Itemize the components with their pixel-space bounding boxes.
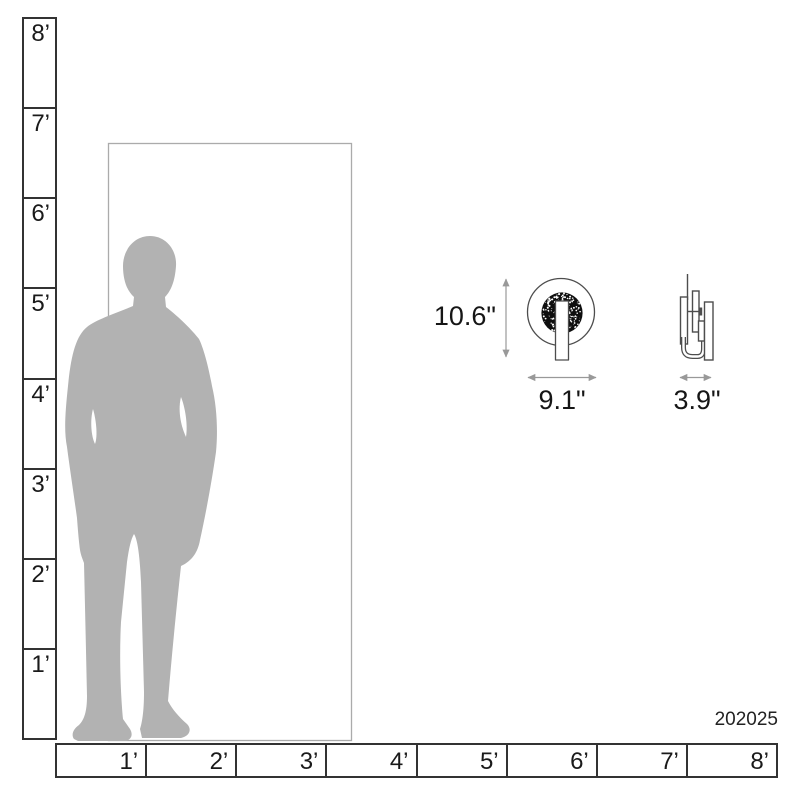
speckle-dot bbox=[543, 309, 545, 311]
speckle-dot bbox=[558, 293, 560, 295]
speckle-dot bbox=[573, 307, 575, 309]
sconce-front-bar bbox=[556, 301, 569, 360]
speckle-dot bbox=[553, 318, 555, 320]
speckle-dot bbox=[578, 309, 579, 310]
speckle-dot bbox=[573, 324, 574, 325]
depth-dimension-label: 3.9" bbox=[647, 387, 747, 414]
speckle-dot bbox=[572, 316, 573, 317]
height-dimension-label: 10.6" bbox=[418, 303, 496, 330]
speckle-dot bbox=[547, 300, 549, 302]
speckle-dot bbox=[570, 318, 571, 319]
speckle-dot bbox=[553, 296, 555, 298]
speckle-dot bbox=[579, 320, 580, 321]
speckle-dot bbox=[549, 315, 550, 316]
speckle-dot bbox=[572, 309, 573, 310]
speckle-dot bbox=[567, 298, 569, 300]
speckle-dot bbox=[569, 327, 570, 328]
speckle-dot bbox=[551, 318, 552, 319]
speckle-dot bbox=[551, 299, 552, 300]
speckle-dot bbox=[577, 303, 578, 304]
speckle-dot bbox=[577, 324, 579, 326]
product-front-view bbox=[528, 279, 595, 361]
side-view-socket bbox=[699, 321, 705, 341]
speckle-dot bbox=[569, 310, 570, 311]
speckle-dot bbox=[553, 303, 554, 304]
speckle-dot bbox=[574, 322, 576, 324]
speckle-dot bbox=[578, 307, 580, 309]
speckle-dot bbox=[554, 312, 555, 313]
speckle-dot bbox=[556, 294, 557, 295]
speckle-dot bbox=[553, 312, 554, 313]
speckle-dot bbox=[576, 316, 577, 317]
speckle-dot bbox=[570, 308, 572, 310]
speckle-dot bbox=[576, 306, 578, 308]
speckle-dot bbox=[575, 318, 577, 320]
speckle-dot bbox=[579, 318, 580, 319]
side-view-knob bbox=[699, 308, 702, 316]
speckle-dot bbox=[569, 296, 571, 298]
speckle-dot bbox=[548, 304, 550, 306]
speckle-dot bbox=[547, 307, 549, 309]
speckle-dot bbox=[573, 316, 574, 317]
speckle-dot bbox=[551, 308, 552, 309]
speckle-dot bbox=[562, 294, 564, 296]
speckle-dot bbox=[571, 321, 573, 323]
speckle-dot bbox=[543, 315, 545, 317]
side-view-disc-edge bbox=[681, 297, 688, 344]
speckle-dot bbox=[564, 296, 566, 298]
speckle-dot bbox=[551, 310, 552, 311]
speckle-dot bbox=[545, 309, 547, 311]
speckle-dot bbox=[578, 303, 579, 304]
speckle-dot bbox=[575, 315, 577, 317]
speckle-dot bbox=[551, 323, 552, 324]
speckle-dot bbox=[566, 294, 567, 295]
speckle-dot bbox=[551, 329, 553, 331]
speckle-dot bbox=[576, 313, 577, 314]
speckle-dot bbox=[569, 299, 570, 300]
speckle-dot bbox=[578, 301, 579, 302]
width-dimension-label: 9.1" bbox=[512, 387, 612, 414]
speckle-dot bbox=[548, 310, 550, 312]
speckle-dot bbox=[574, 320, 575, 321]
person-body bbox=[65, 236, 217, 741]
speckle-dot bbox=[547, 302, 549, 304]
speckle-dot bbox=[571, 300, 572, 301]
speckle-dot bbox=[563, 294, 564, 295]
dimension-diagram: 8’ 7’ 6’ 5’ 4’ 3’ 2’ 1’ 1’ 2’ 3’ 4’ 5’ 6… bbox=[0, 0, 800, 800]
speckle-dot bbox=[569, 305, 570, 306]
speckle-dot bbox=[543, 313, 544, 314]
speckle-dot bbox=[570, 316, 571, 317]
speckle-dot bbox=[553, 326, 555, 328]
product-code: 202025 bbox=[658, 710, 778, 729]
speckle-dot bbox=[548, 298, 550, 300]
speckle-dot bbox=[579, 311, 581, 313]
speckle-dot bbox=[545, 318, 547, 320]
speckle-dot bbox=[571, 326, 572, 327]
speckle-dot bbox=[574, 326, 576, 328]
speckle-dot bbox=[553, 324, 554, 325]
product-side-view bbox=[681, 274, 714, 360]
person-silhouette bbox=[65, 236, 217, 741]
speckle-dot bbox=[544, 321, 545, 322]
speckle-dot bbox=[575, 310, 577, 312]
speckle-dot bbox=[569, 301, 571, 303]
speckle-dot bbox=[561, 296, 562, 297]
side-view-wall-plate bbox=[705, 302, 714, 360]
speckle-dot bbox=[545, 302, 546, 303]
speckle-dot bbox=[572, 298, 573, 299]
speckle-dot bbox=[562, 297, 564, 299]
speckle-dot bbox=[572, 301, 573, 302]
speckle-dot bbox=[557, 297, 559, 299]
speckle-dot bbox=[564, 296, 565, 297]
speckle-dot bbox=[558, 299, 559, 300]
